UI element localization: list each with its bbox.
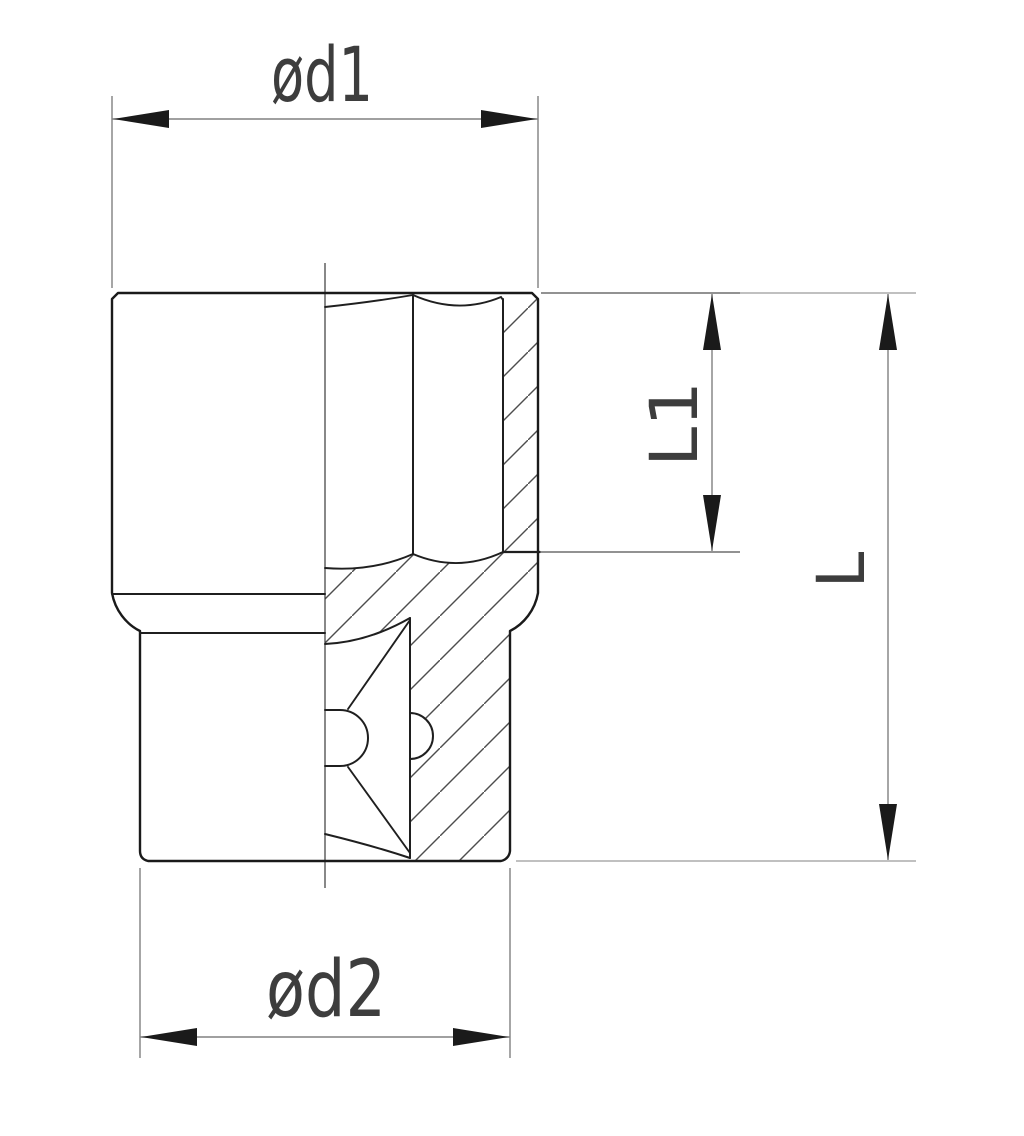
l1-label: L1 bbox=[636, 381, 713, 467]
bore-top-scallop-2 bbox=[413, 295, 503, 306]
drawing-page: ød1 ød2 L1 L bbox=[0, 0, 1024, 1136]
bore-top-scallop-1 bbox=[325, 295, 413, 307]
d2-arrowhead-right bbox=[453, 1028, 509, 1046]
section-hatching bbox=[300, 288, 552, 868]
d2-arrowhead-left bbox=[141, 1028, 197, 1046]
l-arrowhead-top bbox=[879, 294, 897, 350]
d2-label: ød2 bbox=[266, 945, 386, 1035]
l1-arrowhead-top bbox=[703, 294, 721, 350]
l-label: L bbox=[803, 551, 880, 588]
dimension-d1: ød1 bbox=[112, 30, 538, 288]
dimension-l: L bbox=[516, 293, 916, 861]
drive-entry-chamfer bbox=[325, 834, 410, 858]
l1-arrowhead-bottom bbox=[703, 495, 721, 551]
d1-arrowhead-left bbox=[113, 110, 169, 128]
technical-drawing-canvas: ød1 ød2 L1 L bbox=[0, 0, 1024, 1136]
dimension-l1: L1 bbox=[540, 293, 740, 552]
d1-label: ød1 bbox=[271, 30, 373, 119]
d1-arrowhead-right bbox=[481, 110, 537, 128]
l-arrowhead-bottom bbox=[879, 804, 897, 860]
drive-corner-edge-lower bbox=[348, 767, 410, 853]
ball-groove-near bbox=[325, 710, 368, 766]
dimension-d2: ød2 bbox=[140, 868, 510, 1058]
